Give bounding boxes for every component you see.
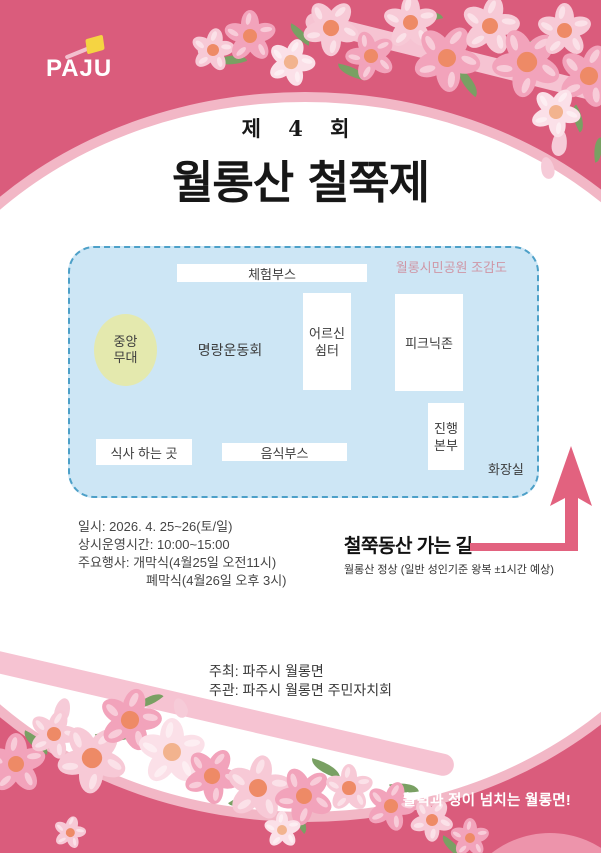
blossom-icon bbox=[190, 27, 236, 73]
trail-title: 철쭉동산 가는 길 bbox=[344, 531, 472, 558]
map-main-stage-line1: 중앙 bbox=[114, 334, 138, 350]
info-closing-event: 폐막식(4월26일 오후 3시) bbox=[78, 572, 286, 590]
map-main-stage: 중앙 무대 bbox=[94, 314, 157, 386]
paju-logo-flag-icon bbox=[85, 35, 104, 55]
blossom-icon bbox=[263, 34, 319, 90]
blossom-icon bbox=[52, 814, 89, 851]
map-elder-line2: 쉼터 bbox=[315, 342, 339, 359]
festival-poster: PAJU 제 4 회 월롱산 철쭉제 월롱시민공원 조감도 체험부스 중앙 무대… bbox=[0, 0, 601, 853]
organizer-line: 주관: 파주시 월롱면 주민자치회 bbox=[209, 681, 392, 700]
map-hq-line2: 본부 bbox=[434, 437, 458, 454]
map-main-stage-line2: 무대 bbox=[114, 350, 138, 366]
corner-petal-decoration bbox=[455, 833, 601, 853]
leaf-icon bbox=[524, 29, 556, 54]
blossom-icon bbox=[539, 5, 589, 55]
leaf-icon bbox=[413, 7, 443, 26]
blossom-icon bbox=[458, 0, 522, 58]
title-edition: 제 4 회 bbox=[0, 113, 601, 143]
title-main: 월롱산 철쭉제 bbox=[0, 146, 601, 211]
organizer-block: 주최: 파주시 월롱면 주관: 파주시 월롱면 주민자치회 bbox=[209, 662, 392, 700]
info-hours: 상시운영시간: 10:00~15:00 bbox=[78, 536, 286, 554]
map-food-booth: 음식부스 bbox=[222, 443, 347, 461]
leaf-icon bbox=[336, 63, 368, 80]
leaf-icon bbox=[217, 50, 247, 71]
info-date: 일시: 2026. 4. 25~26(토/일) bbox=[78, 518, 286, 536]
map-dining-area: 식사 하는 곳 bbox=[96, 439, 192, 465]
town-slogan: 활력과 정이 넘치는 월롱면! bbox=[403, 789, 571, 810]
trail-arrow-icon bbox=[460, 440, 600, 560]
map-experience-booth: 체험부스 bbox=[177, 264, 367, 282]
paju-logo: PAJU bbox=[46, 55, 112, 83]
poster-title-block: 제 4 회 월롱산 철쭉제 bbox=[0, 113, 601, 211]
map-elder-rest-area: 어르신 쉼터 bbox=[303, 293, 351, 390]
blossom-icon bbox=[226, 12, 274, 60]
host-line: 주최: 파주시 월롱면 bbox=[209, 662, 392, 681]
map-games-label: 명랑운동회 bbox=[186, 340, 274, 360]
map-caption: 월롱시민공원 조감도 bbox=[396, 257, 507, 276]
map-picnic-zone: 피크닉존 bbox=[395, 294, 463, 391]
info-opening-event: 주요행사: 개막식(4월25일 오전11시) bbox=[78, 554, 286, 572]
event-info-block: 일시: 2026. 4. 25~26(토/일) 상시운영시간: 10:00~15… bbox=[78, 518, 286, 590]
trail-description: 월롱산 정상 (일반 성인기준 왕복 ±1시간 예상) bbox=[344, 561, 554, 577]
leaf-icon bbox=[438, 835, 466, 853]
map-elder-line1: 어르신 bbox=[309, 325, 345, 342]
map-operations-hq: 진행 본부 bbox=[428, 403, 464, 470]
blossom-icon bbox=[452, 820, 488, 853]
map-hq-line1: 진행 bbox=[434, 420, 458, 437]
flower-bud-icon bbox=[194, 40, 214, 64]
